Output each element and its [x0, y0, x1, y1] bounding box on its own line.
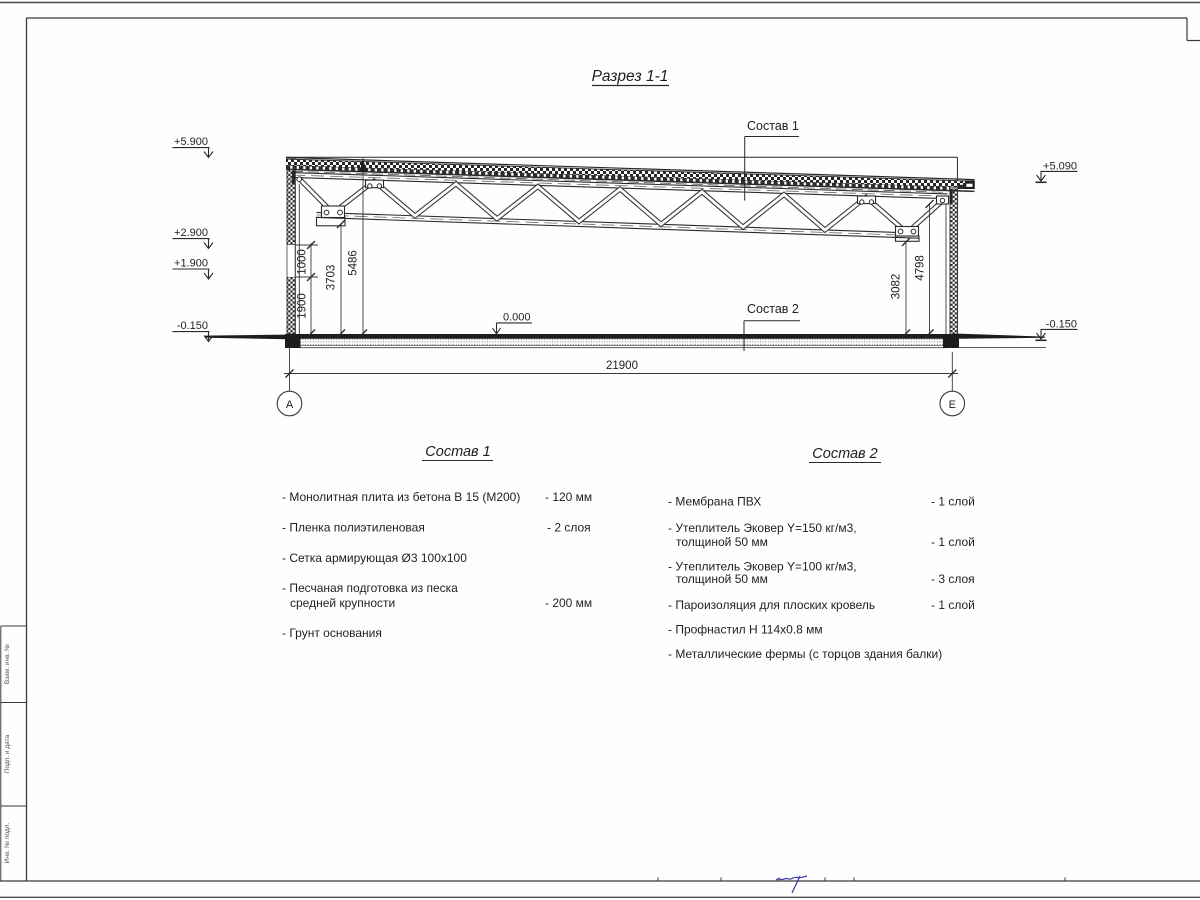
svg-text:3703: 3703 [326, 265, 338, 291]
svg-text:-0.150: -0.150 [1046, 319, 1077, 331]
svg-text:Е: Е [949, 399, 956, 411]
svg-text:толщиной 50 мм: толщиной 50 мм [676, 572, 768, 586]
svg-text:- Песчаная подготовка из песка: - Песчаная подготовка из песка [282, 581, 458, 595]
svg-text:Состав 1: Состав 1 [425, 444, 490, 460]
svg-text:- Сетка армирующая Ø3 100х100: - Сетка армирующая Ø3 100х100 [282, 551, 467, 565]
svg-text:5486: 5486 [348, 250, 360, 276]
svg-text:- Металлические фермы (с торцо: - Металлические фермы (с торцов здания б… [668, 647, 942, 661]
svg-text:Подп. и дата: Подп. и дата [4, 734, 11, 773]
svg-text:+5.090: +5.090 [1043, 161, 1077, 173]
svg-text:+1.900: +1.900 [174, 258, 208, 270]
svg-text:0.000: 0.000 [503, 312, 531, 324]
svg-text:Инв. № подл.: Инв. № подл. [4, 823, 11, 864]
svg-text:+2.900: +2.900 [174, 227, 208, 239]
svg-text:- 2 слоя: - 2 слоя [547, 521, 591, 535]
svg-text:1000: 1000 [297, 249, 309, 275]
svg-text:Состав 2: Состав 2 [747, 302, 799, 316]
svg-text:- Пароизоляция для плоских кро: - Пароизоляция для плоских кровель [668, 598, 875, 612]
svg-text:- Пленка полиэтиленовая: - Пленка полиэтиленовая [282, 521, 425, 535]
svg-text:- 3 слоя: - 3 слоя [931, 572, 975, 586]
svg-text:средней крупности: средней крупности [290, 596, 395, 610]
svg-text:3082: 3082 [891, 274, 903, 300]
svg-text:- Монолитная плита из бетона В: - Монолитная плита из бетона В 15 (М200) [282, 490, 520, 504]
svg-text:А: А [286, 399, 294, 411]
svg-text:- Утеплитель Эковер Y=150 кг/м: - Утеплитель Эковер Y=150 кг/м3, [668, 521, 857, 535]
svg-text:толщиной 50 мм: толщиной 50 мм [676, 535, 768, 549]
svg-text:- 1 слой: - 1 слой [931, 495, 975, 509]
svg-text:+5.900: +5.900 [174, 136, 208, 148]
svg-text:- 1 слой: - 1 слой [931, 535, 975, 549]
svg-text:- 1 слой: - 1 слой [931, 598, 975, 612]
svg-text:- Мембрана ПВХ: - Мембрана ПВХ [668, 495, 761, 509]
svg-text:Взам. инв. №: Взам. инв. № [4, 644, 11, 684]
svg-text:Состав 1: Состав 1 [747, 119, 799, 133]
svg-text:- 200 мм: - 200 мм [545, 596, 592, 610]
svg-text:Разрез 1-1: Разрез 1-1 [592, 68, 669, 85]
svg-text:- 120 мм: - 120 мм [545, 490, 592, 504]
svg-text:Состав 2: Состав 2 [812, 446, 877, 462]
svg-text:- Грунт основания: - Грунт основания [282, 626, 382, 640]
svg-text:-0.150: -0.150 [177, 320, 208, 332]
svg-text:4798: 4798 [915, 255, 927, 281]
svg-text:21900: 21900 [606, 360, 638, 372]
svg-text:- Профнастил Н 114х0.8 мм: - Профнастил Н 114х0.8 мм [668, 623, 823, 637]
svg-text:1900: 1900 [297, 293, 309, 319]
